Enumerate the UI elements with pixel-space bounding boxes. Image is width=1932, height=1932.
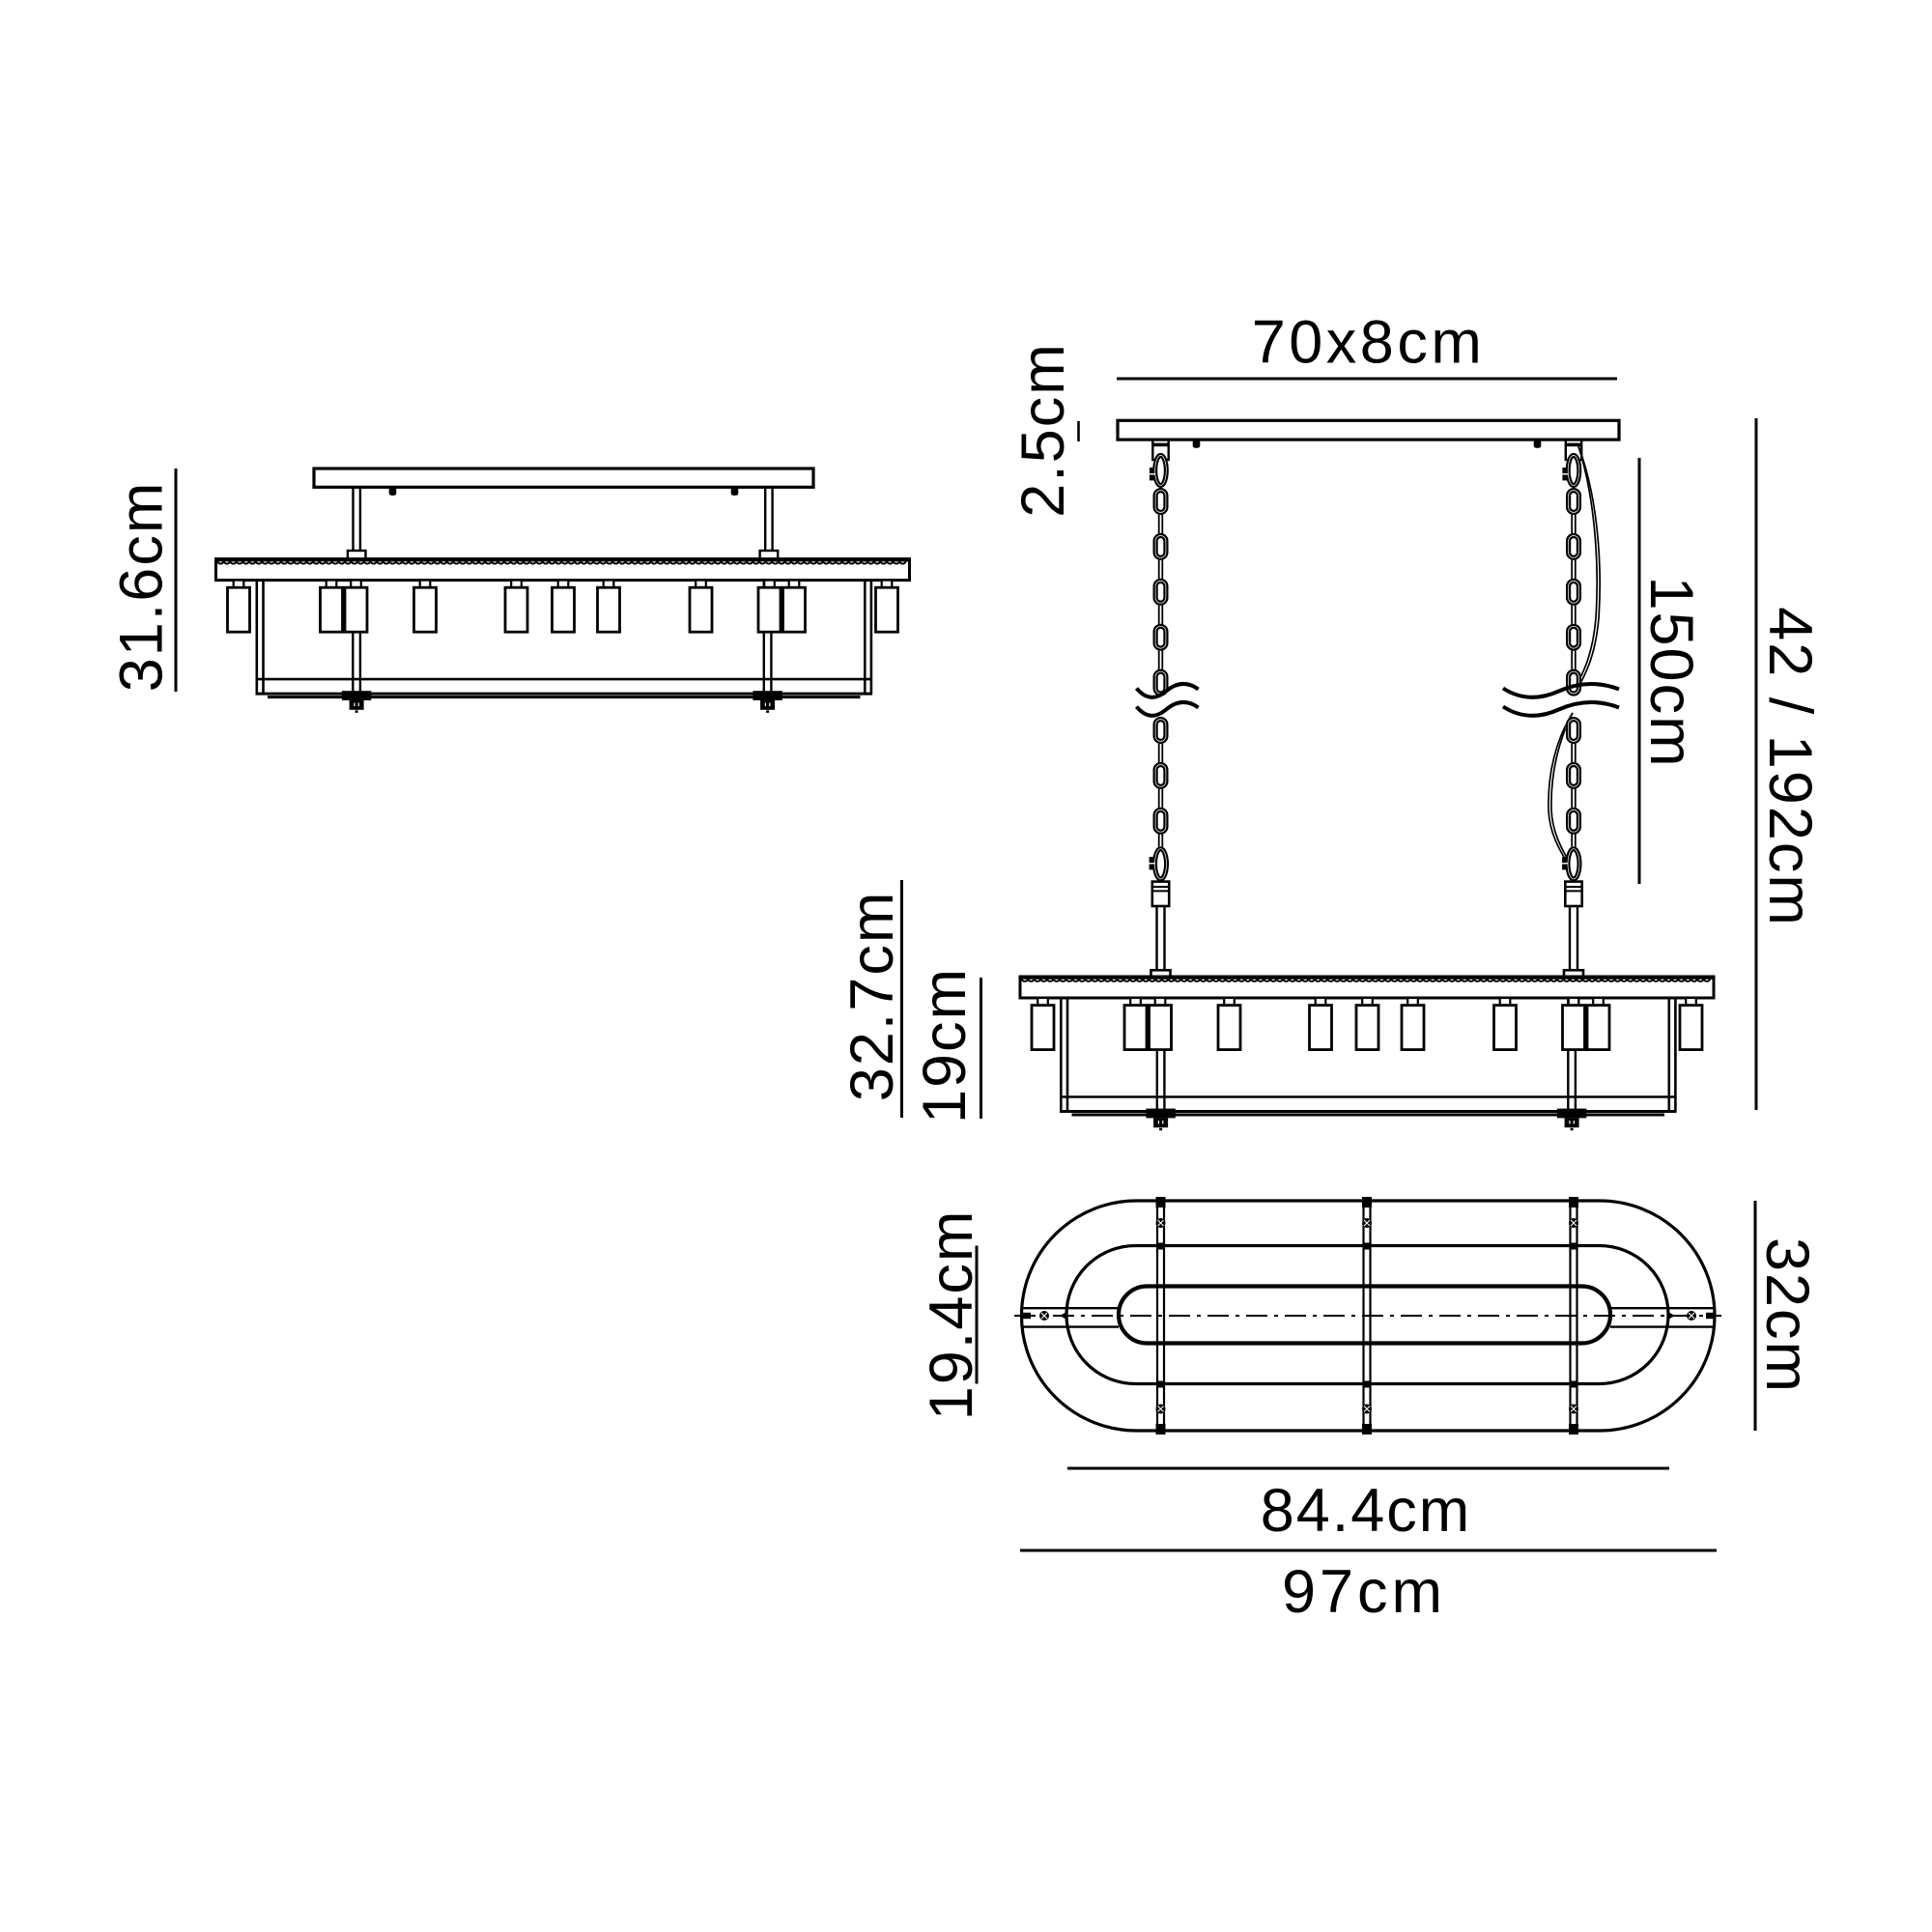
svg-text:19cm: 19cm — [911, 967, 979, 1123]
svg-text:31.6cm: 31.6cm — [108, 481, 176, 693]
svg-text:2.5cm: 2.5cm — [1009, 342, 1077, 518]
svg-text:97cm: 97cm — [1282, 1558, 1446, 1626]
svg-text:32cm: 32cm — [1753, 1237, 1821, 1394]
svg-text:32.7cm: 32.7cm — [838, 891, 906, 1102]
svg-text:150cm: 150cm — [1637, 576, 1705, 768]
svg-text:19.4cm: 19.4cm — [918, 1209, 985, 1421]
svg-text:70x8cm: 70x8cm — [1252, 309, 1486, 377]
svg-text:42 / 192cm: 42 / 192cm — [1756, 607, 1824, 927]
svg-text:84.4cm: 84.4cm — [1261, 1477, 1472, 1545]
